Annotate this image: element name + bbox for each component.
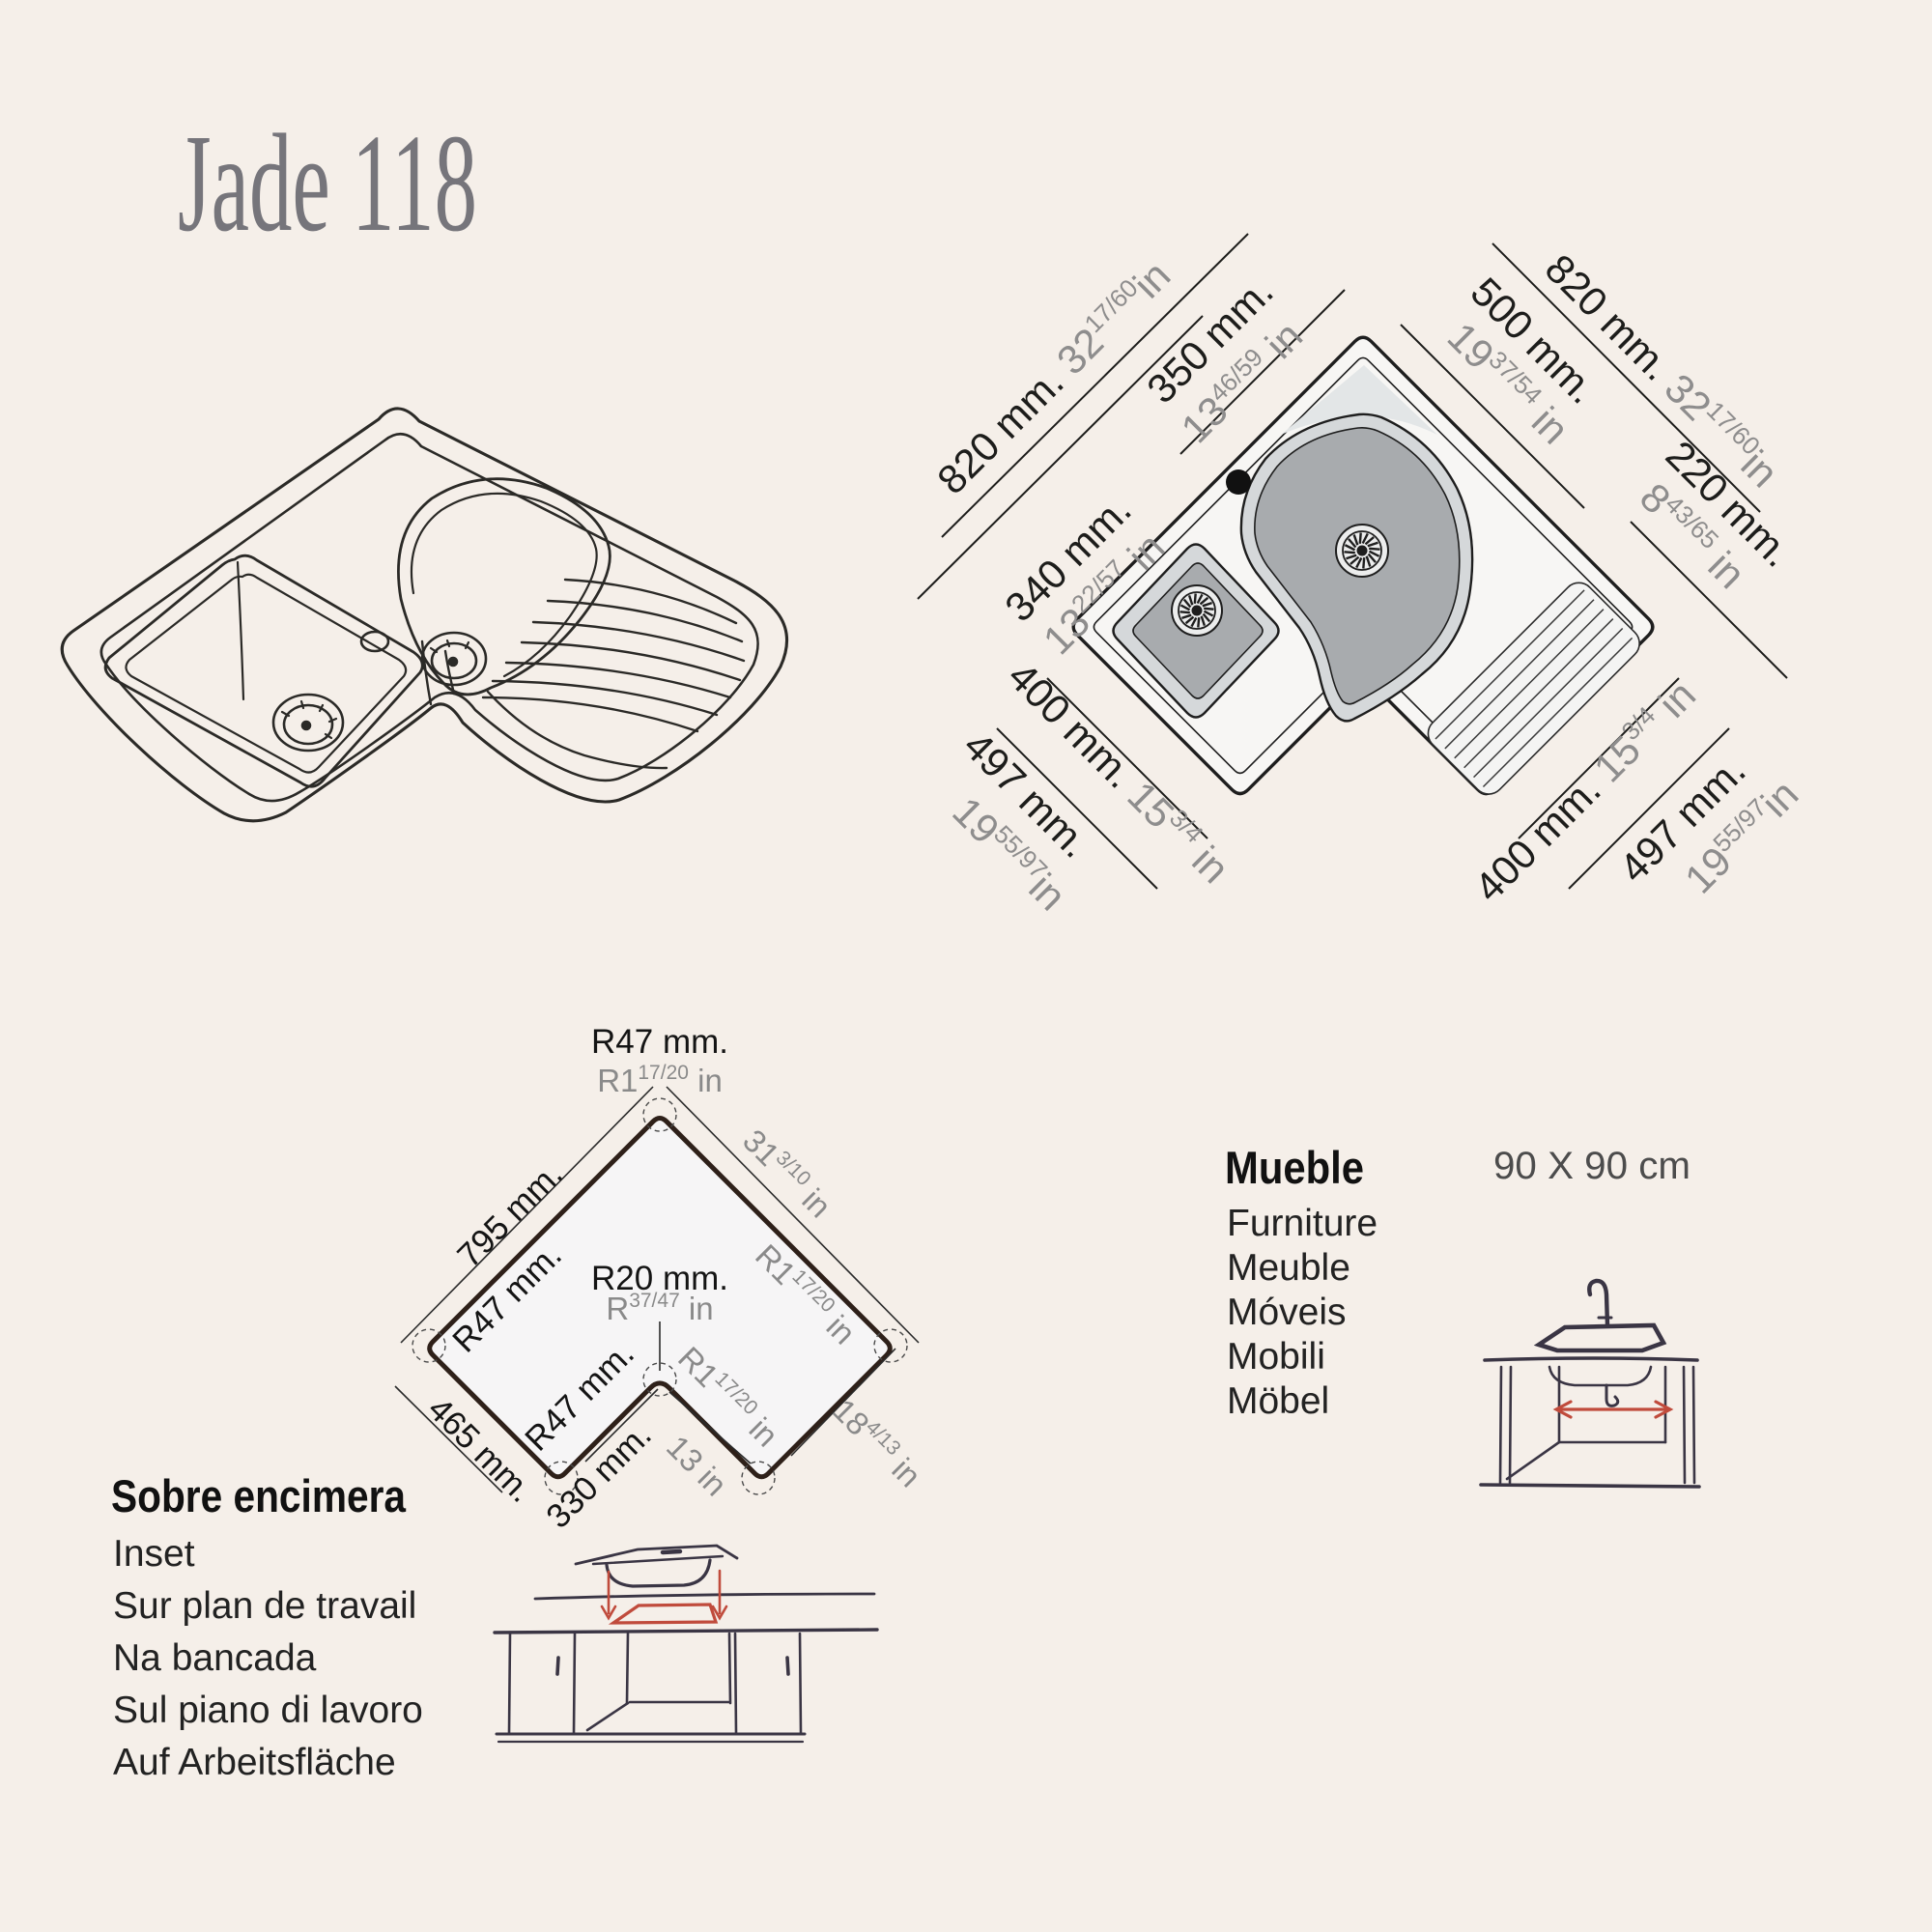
svg-text:Inset: Inset [113,1533,195,1575]
svg-text:Sobre encimera: Sobre encimera [111,1470,407,1521]
svg-text:Mobili: Mobili [1227,1336,1325,1378]
svg-text:R47 mm.: R47 mm. [591,1023,728,1061]
svg-text:90 X 90 cm: 90 X 90 cm [1493,1145,1690,1187]
svg-text:Na bancada: Na bancada [113,1637,317,1679]
svg-text:Jade 118: Jade 118 [178,106,477,261]
svg-text:Mueble: Mueble [1225,1142,1364,1193]
svg-text:Furniture: Furniture [1227,1203,1378,1244]
svg-text:Sul piano di lavoro: Sul piano di lavoro [113,1690,423,1731]
svg-text:Auf Arbeitsfläche: Auf Arbeitsfläche [113,1742,396,1783]
svg-text:Meuble: Meuble [1227,1247,1350,1289]
svg-text:Möbel: Möbel [1227,1380,1329,1422]
svg-text:Móveis: Móveis [1227,1292,1347,1333]
svg-text:Sur plan de travail: Sur plan de travail [113,1585,416,1627]
